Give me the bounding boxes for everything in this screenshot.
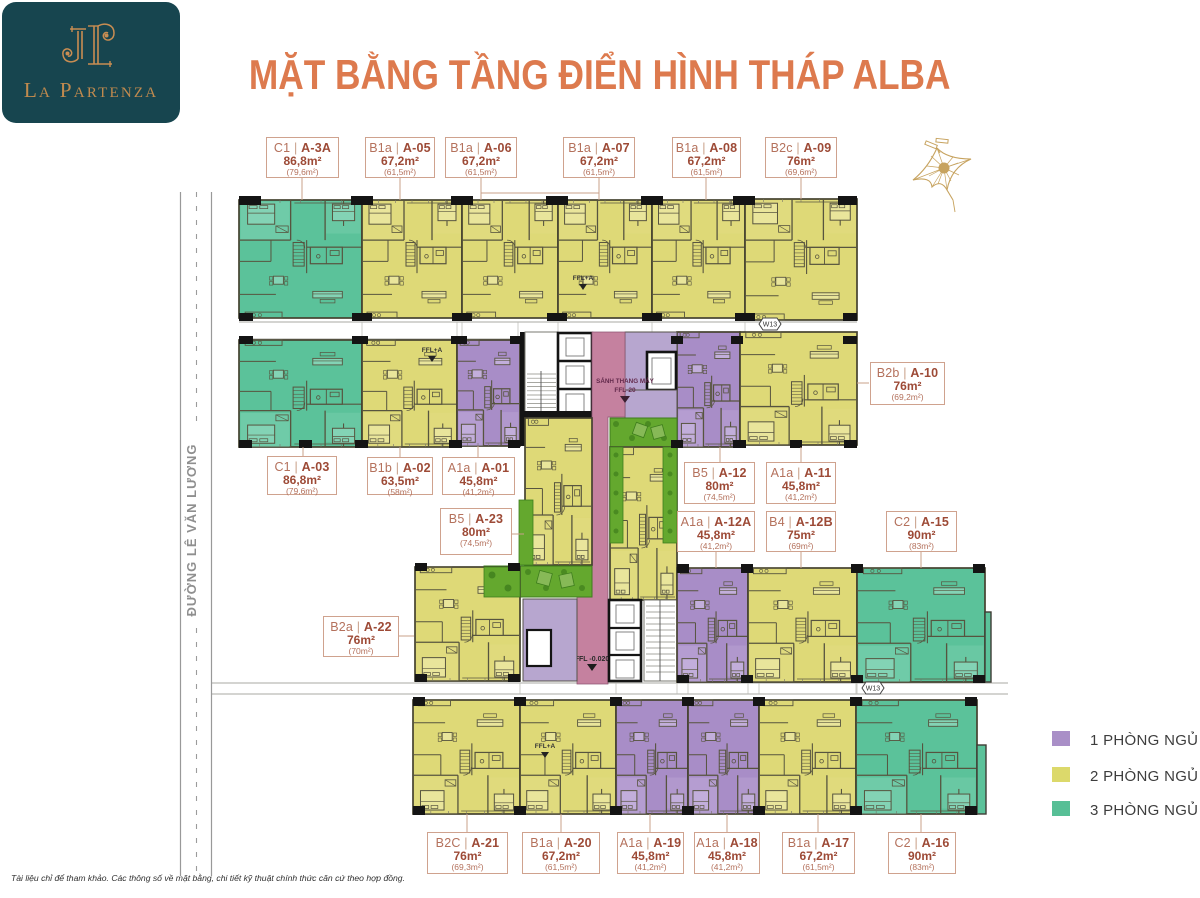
svg-text:ĐƯỜNG LÊ VĂN LƯƠNG: ĐƯỜNG LÊ VĂN LƯƠNG <box>184 444 199 617</box>
svg-text:FFL-20: FFL-20 <box>614 387 636 394</box>
svg-text:W13: W13 <box>763 322 778 329</box>
svg-text:FFL+A: FFL+A <box>422 347 443 354</box>
svg-text:FFL -0.020: FFL -0.020 <box>575 656 610 663</box>
svg-text:SẢNH THANG MÁY: SẢNH THANG MÁY <box>596 376 655 385</box>
svg-text:FFL+A: FFL+A <box>573 275 594 282</box>
svg-text:W13: W13 <box>866 686 881 693</box>
svg-text:FFL+A: FFL+A <box>535 743 556 750</box>
